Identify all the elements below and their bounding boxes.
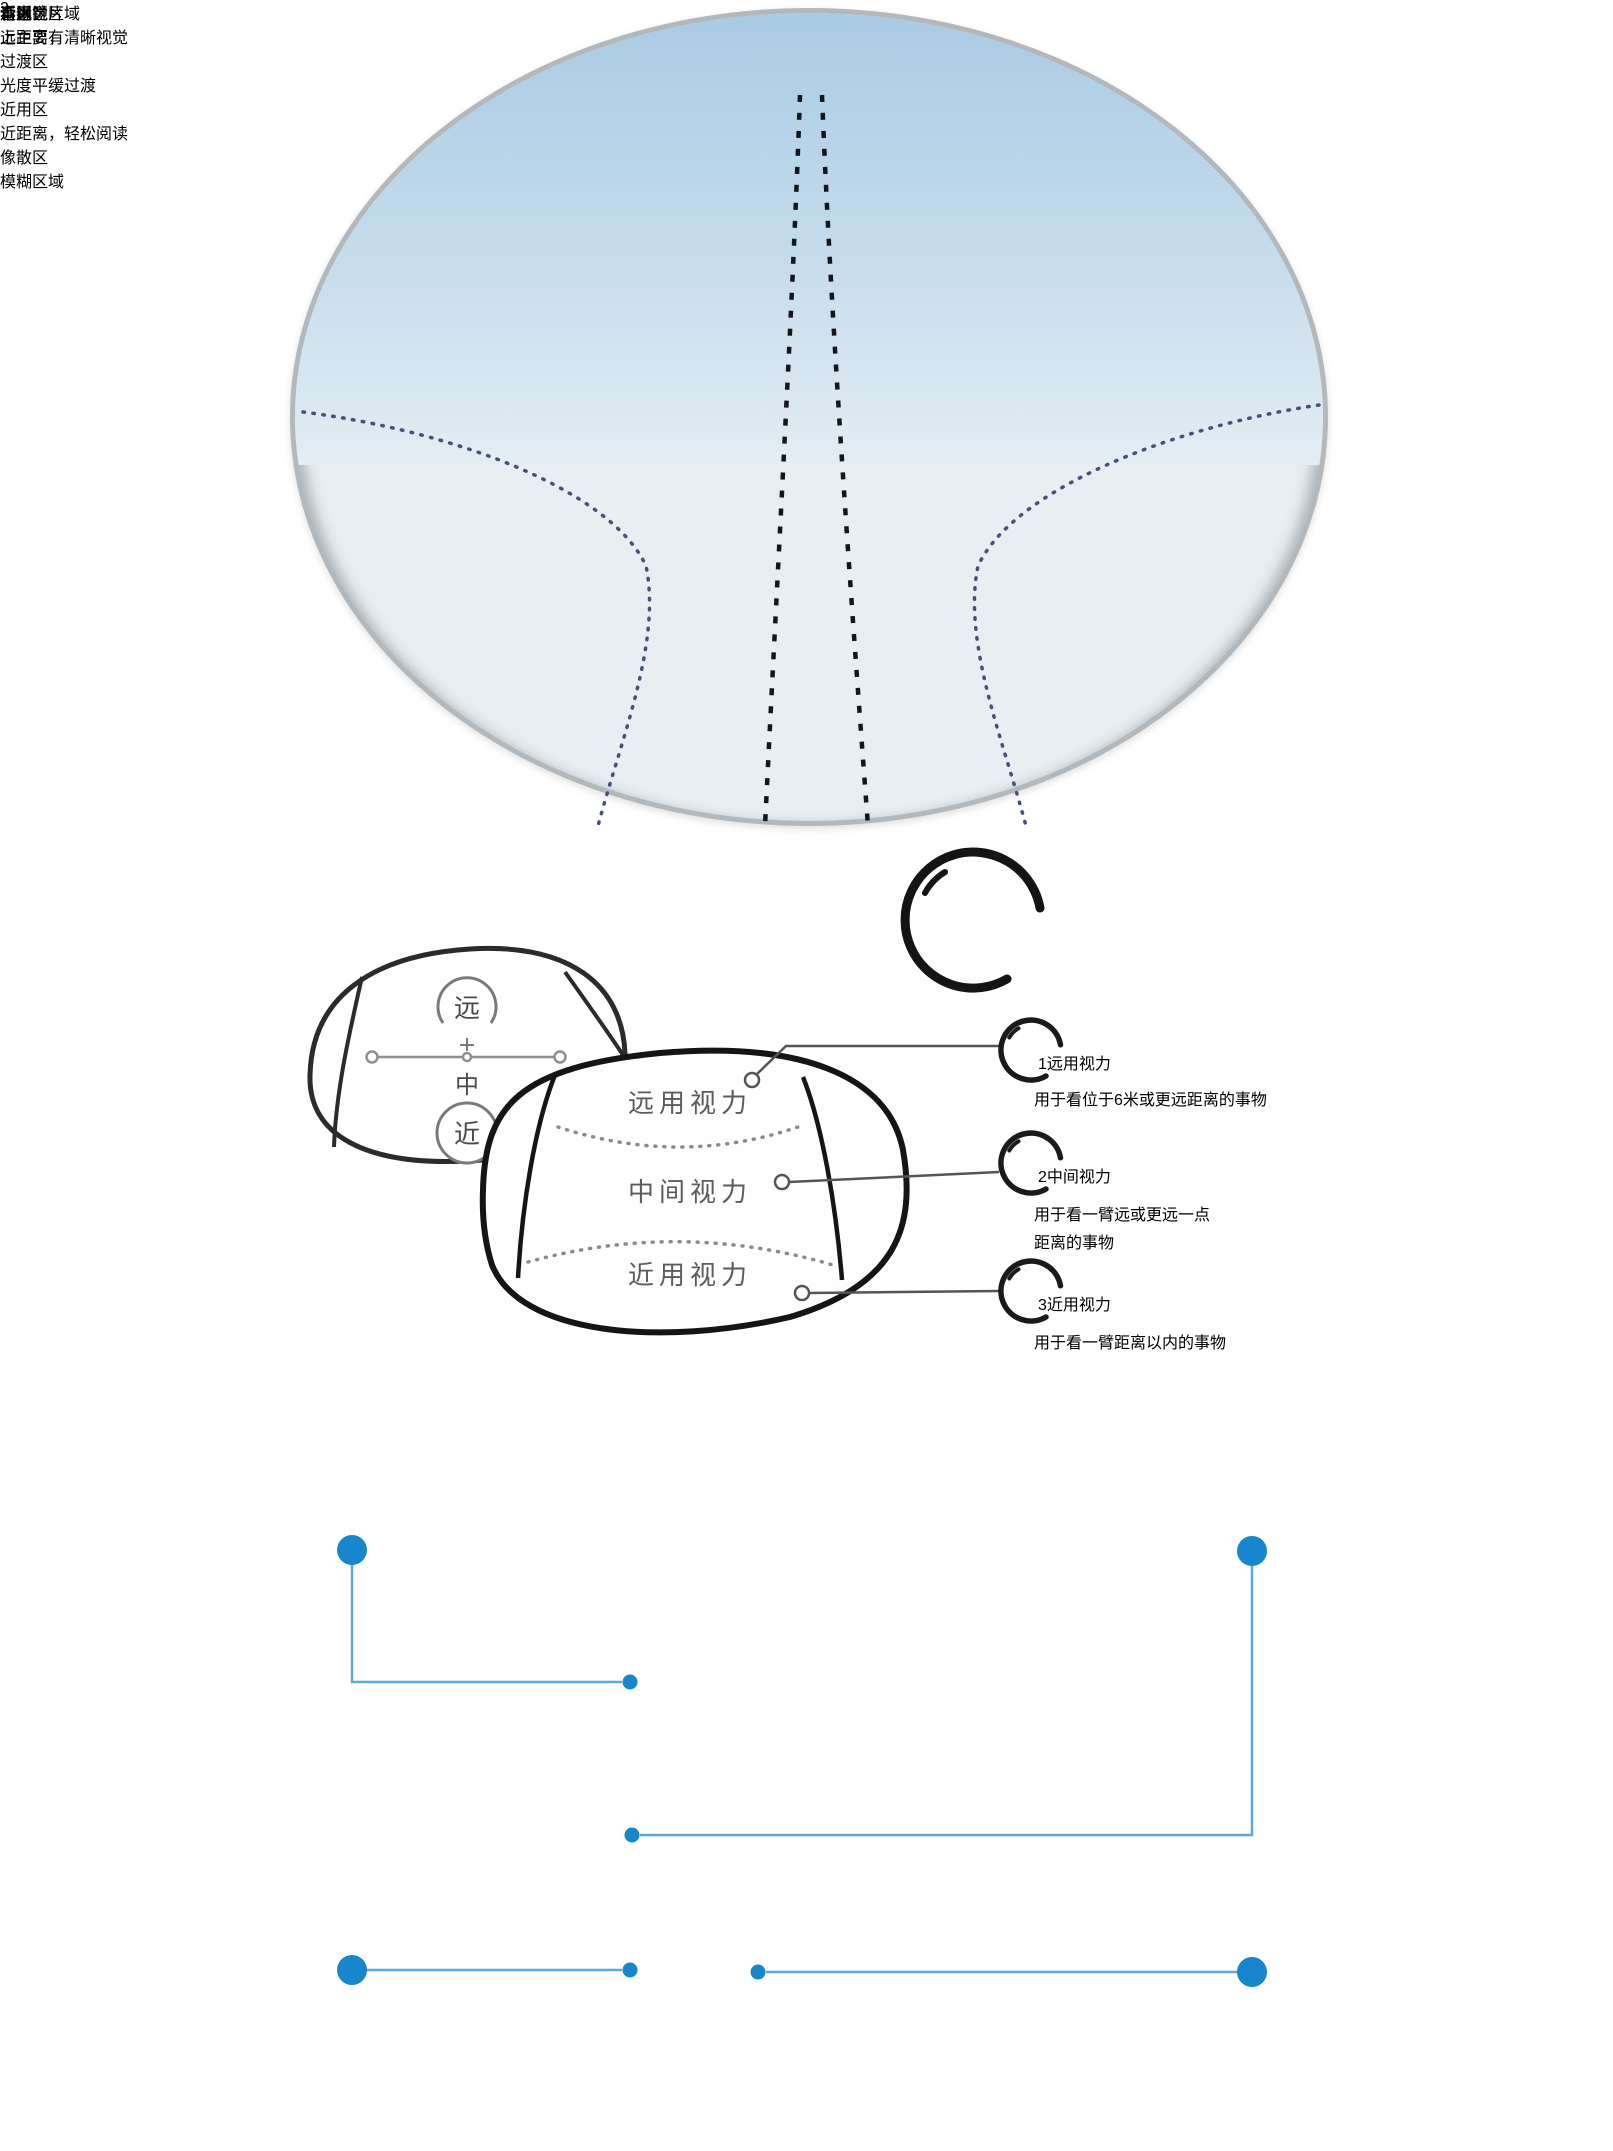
- corridor-dashed-line-left: [765, 95, 800, 826]
- vision-item-1-title: 1远用视力: [1038, 1050, 1111, 1074]
- zone-endpoint-transition: [625, 1828, 640, 1843]
- zone-dot-astigmatism: [1237, 1957, 1267, 1987]
- callout-anchor-2: [775, 1175, 789, 1189]
- blind-zone-curve-right: [974, 405, 1319, 826]
- zone-endpoint-astigmatism: [751, 1965, 766, 1980]
- vision-item-3-desc: 用于看一臂距离以内的事物: [1034, 1329, 1226, 1353]
- main-lens-far-zone-label: 远用视力: [628, 1088, 752, 1118]
- item-1-number: 1: [1038, 1056, 1047, 1073]
- vision-item-3-title: 3近用视力: [1038, 1291, 1111, 1315]
- item-3-label: 近用视力: [1047, 1297, 1111, 1314]
- zone-dot-transition: [1237, 1536, 1267, 1566]
- headline-suffix: 个视觉区域: [0, 0, 80, 24]
- vision-item-2-desc-line1: 用于看一臂远或更远一点: [1034, 1201, 1210, 1225]
- zone-connectors: [0, 1372, 1613, 2151]
- mini-lens-far-text: 远: [454, 993, 480, 1023]
- mini-lens-near-text: 近: [454, 1119, 480, 1149]
- headline-line2: 上主要有: [0, 24, 64, 48]
- progressive-lens-infographic: 看远 看中 看近 盲区 盲区 远 中 近 远用视力 中间视力 近用视力: [0, 0, 1613, 2151]
- mini-lens-line-endpoint: [367, 1052, 378, 1063]
- lens-zone-diagram: 远 中 近 远用视力 中间视力 近用视力: [0, 835, 1613, 1372]
- mini-lens-mid-text: 中: [455, 1072, 479, 1099]
- vision-item-2-title: 2中间视力: [1038, 1163, 1111, 1187]
- main-lens-mid-zone-label: 中间视力: [628, 1177, 752, 1207]
- zone-dot-near: [337, 1955, 367, 1985]
- item-1-label: 远用视力: [1047, 1056, 1111, 1073]
- callout-anchor-1: [745, 1073, 759, 1087]
- corridor-dashed-line-right: [822, 95, 868, 826]
- item-2-label: 中间视力: [1047, 1169, 1111, 1186]
- top-lens-overlay-lines: [0, 0, 1613, 835]
- callout-anchor-3: [795, 1286, 809, 1300]
- mini-lens-line-endpoint: [555, 1052, 566, 1063]
- vision-item-1-desc: 用于看位于6米或更远距离的事物: [1034, 1086, 1267, 1110]
- blind-zone-curve-left: [303, 412, 650, 826]
- vision-item-2-desc-line2: 距离的事物: [1034, 1229, 1114, 1253]
- main-lens-near-zone-label: 近用视力: [628, 1260, 752, 1290]
- zone-endpoint-far: [623, 1675, 638, 1690]
- zone-dot-far: [337, 1535, 367, 1565]
- connector-line-far-zone: [352, 1550, 622, 1682]
- connector-line-transition-zone: [640, 1551, 1252, 1835]
- zone-endpoint-near: [623, 1963, 638, 1978]
- mini-lens-line-center: [463, 1053, 471, 1061]
- item-3-number: 3: [1038, 1297, 1047, 1314]
- item-2-number: 2: [1038, 1169, 1047, 1186]
- lens-ring-icon: [905, 852, 1040, 988]
